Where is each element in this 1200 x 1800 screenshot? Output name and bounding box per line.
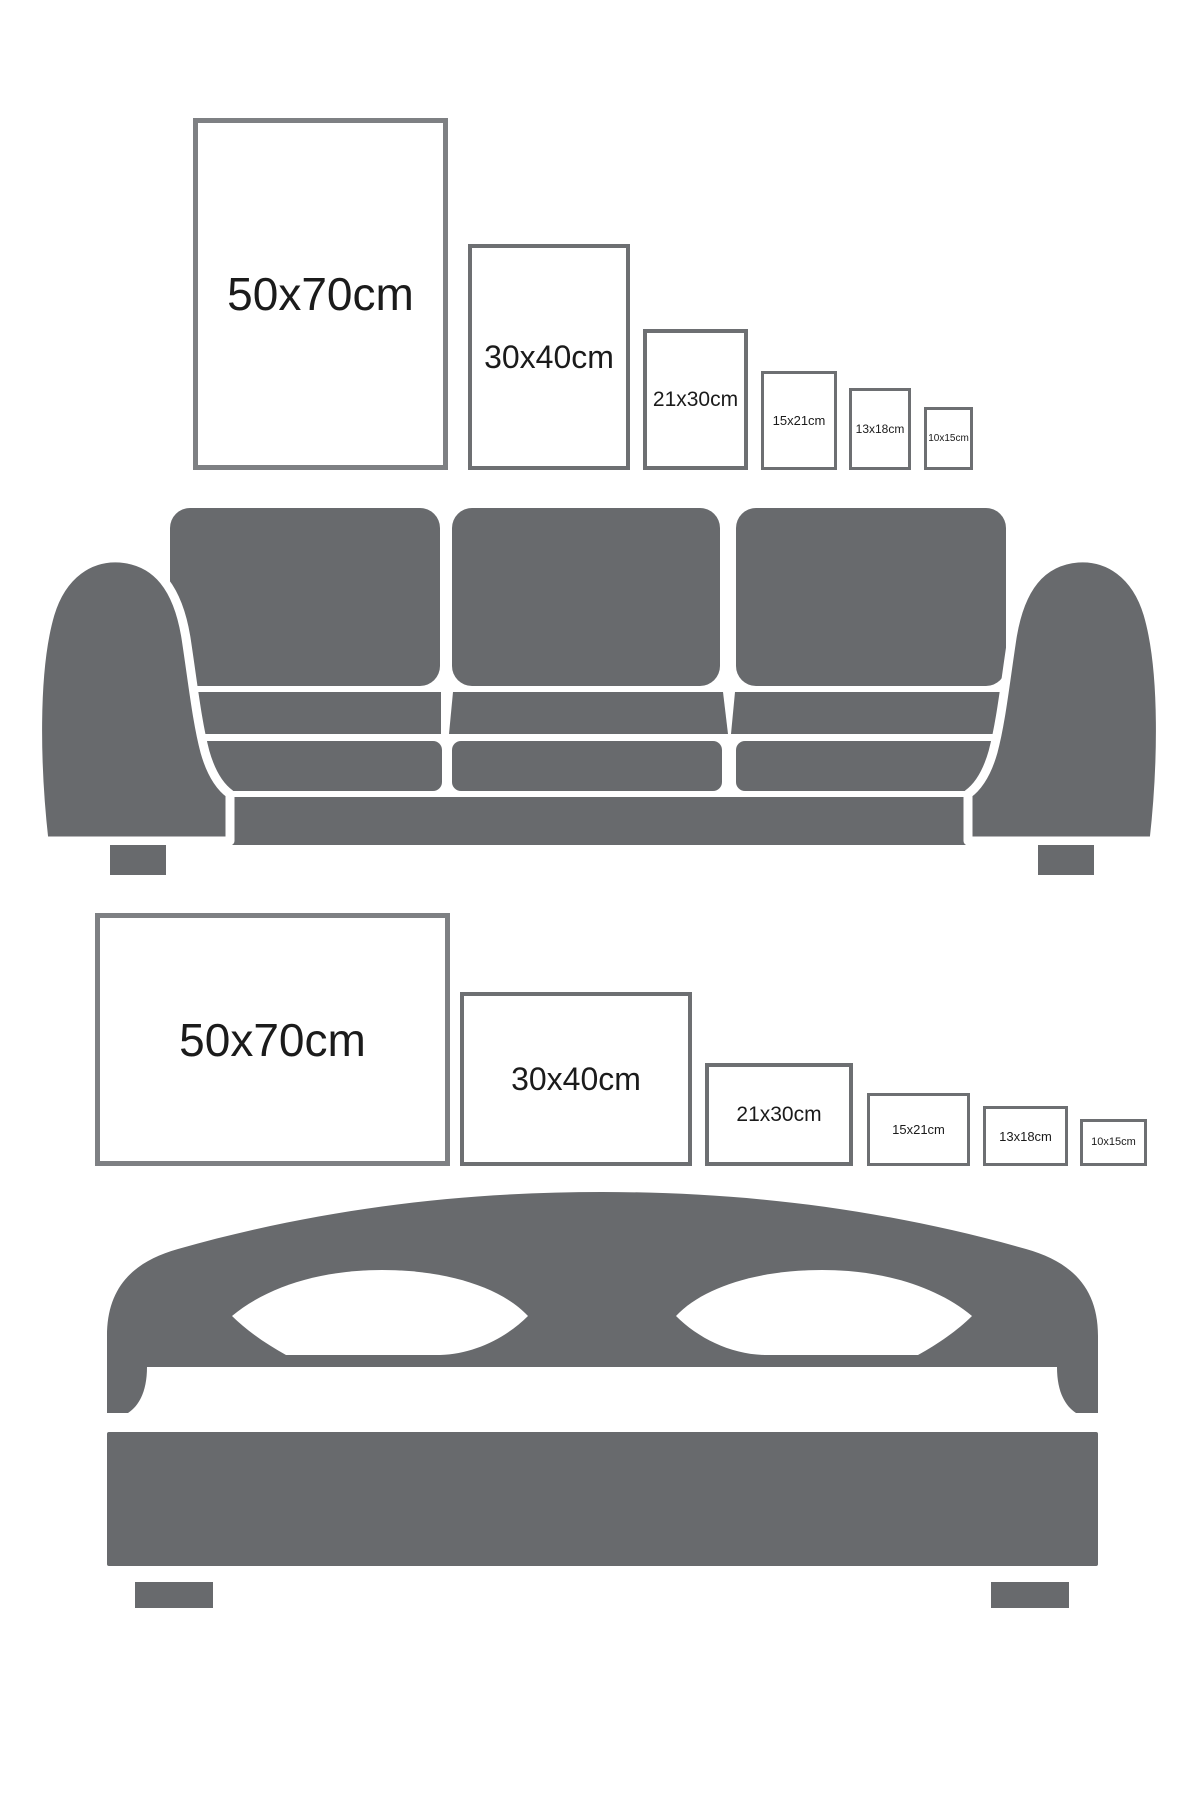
sofa-back-cushion (452, 508, 720, 686)
sofa-base (86, 797, 1118, 845)
sofa-icon (38, 508, 1161, 875)
bed-foot-left (135, 1582, 213, 1608)
poster-size-guide: 50x70cm 30x40cm 21x30cm 15x21cm 13x18cm … (0, 0, 1200, 1800)
bed-base (107, 1432, 1098, 1566)
sofa-foot-left (110, 845, 166, 875)
sofa-back-cushion (736, 508, 1006, 686)
sofa-back-cushion (170, 508, 440, 686)
sofa-seat-deck-middle (449, 692, 728, 734)
sofa-foot-right (1038, 845, 1094, 875)
sofa-seat-cushion (452, 741, 722, 791)
bed-icon (107, 1192, 1098, 1608)
furniture-illustrations (0, 0, 1200, 1800)
bed-foot-right (991, 1582, 1069, 1608)
